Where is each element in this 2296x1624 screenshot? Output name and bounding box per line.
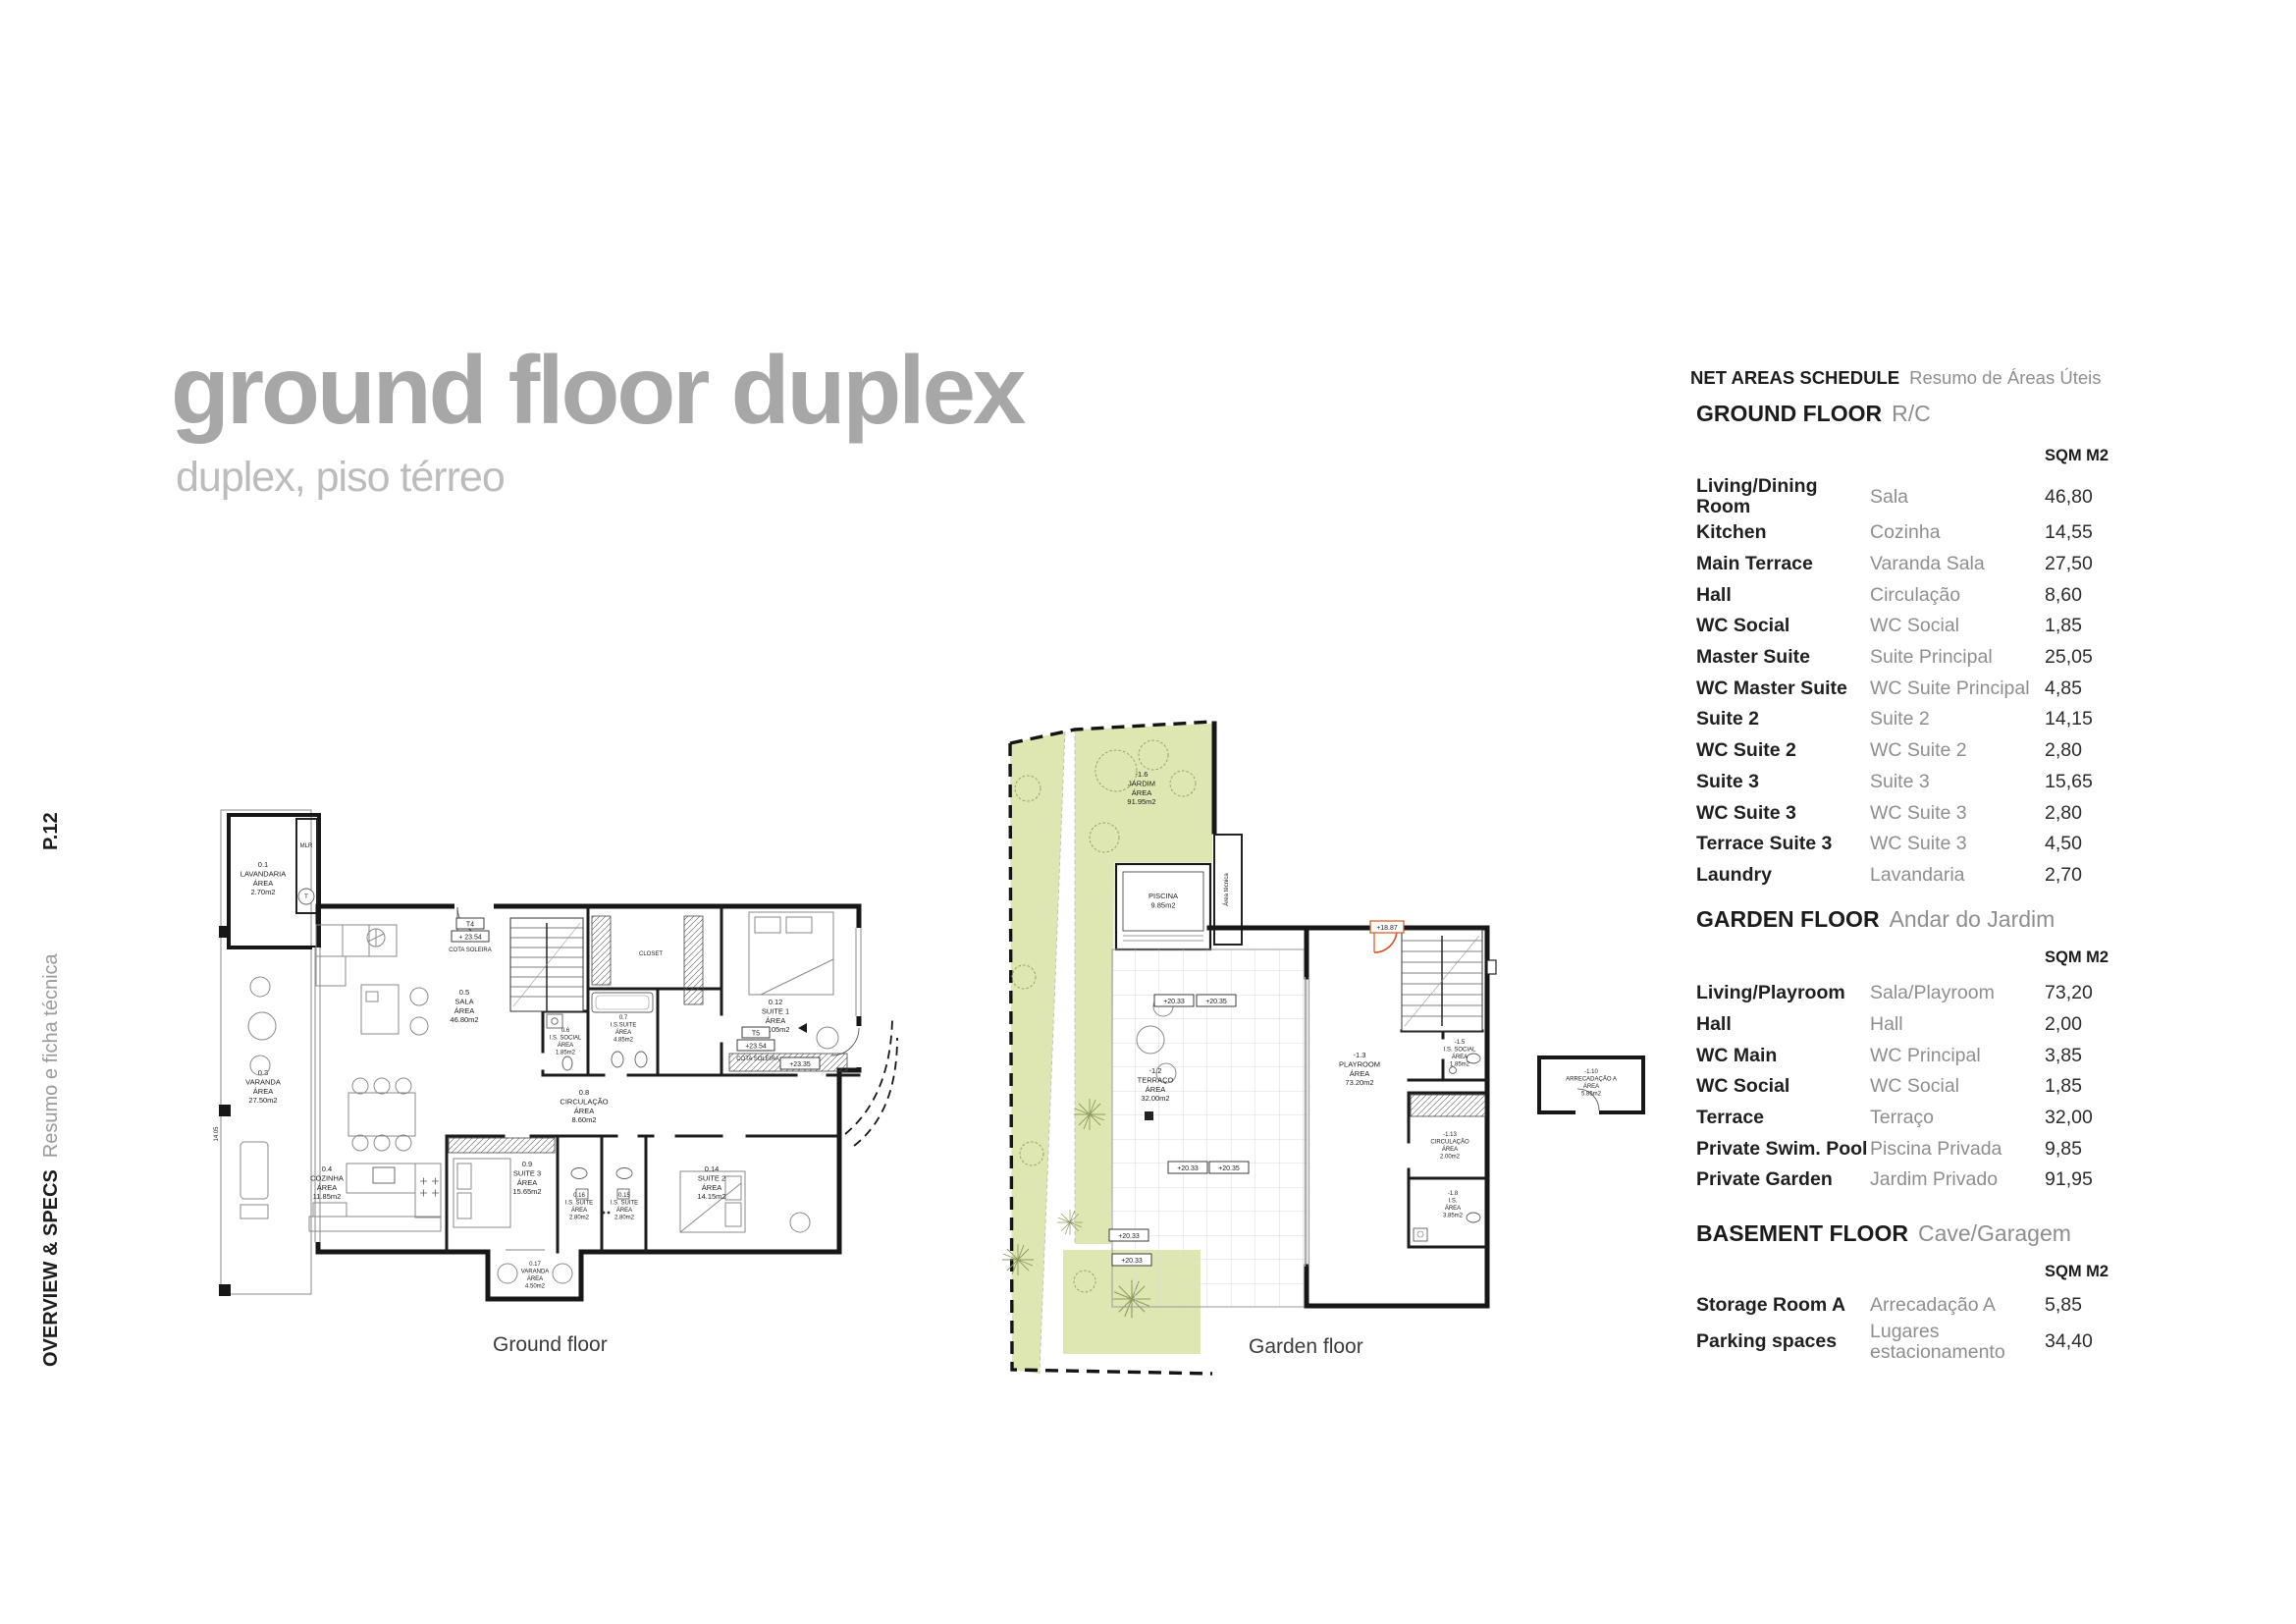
- varanda-furniture: [240, 977, 572, 1283]
- marker-2033c: +20.33: [1118, 1233, 1140, 1240]
- table-row: Storage Room AArrecadação A5,85: [1696, 1290, 2118, 1322]
- table-row: Living/PlayroomSala/Playroom73,20: [1696, 978, 2118, 1009]
- table-row: Suite 2Suite 214,15: [1696, 704, 2118, 735]
- room-name-en: Hall: [1696, 1014, 1870, 1035]
- entrance-door: +18.87: [1370, 921, 1404, 952]
- table-row: Terrace Suite 3WC Suite 34,50: [1696, 829, 2118, 860]
- room-area-value: 9,85: [2045, 1138, 2082, 1161]
- table-row: LaundryLavandaria2,70: [1696, 860, 2118, 892]
- room-name-pt: Arrecadação A: [1870, 1295, 2045, 1316]
- label-area-tecnica: Área técnica: [1223, 873, 1230, 906]
- room-name-en: WC Social: [1696, 616, 1870, 636]
- table-row: WC SocialWC Social1,85: [1696, 1071, 2118, 1103]
- marker-2033b: +20.33: [1177, 1165, 1199, 1172]
- room-name-pt: Lavandaria: [1870, 865, 2045, 886]
- ground-interior-walls: [447, 906, 859, 1252]
- marker-2033d: +20.33: [1121, 1258, 1143, 1265]
- room-name-en: Terrace Suite 3: [1696, 834, 1870, 854]
- section-garden-floor: GARDEN FLOORAndar do Jardim: [1696, 906, 2055, 933]
- section-name-en: BASEMENT FLOOR: [1696, 1220, 1908, 1246]
- room-name-en: Private Swim. Pool: [1696, 1139, 1870, 1160]
- table-row: Suite 3Suite 315,65: [1696, 767, 2118, 798]
- room-name-en: WC Suite 3: [1696, 803, 1870, 824]
- marker-2335: +23.35: [789, 1061, 811, 1068]
- room-name-en: WC Master Suite: [1696, 678, 1870, 699]
- room-name-pt: Lugares estacionamento: [1870, 1322, 2045, 1363]
- marker-2035: +20.35: [1205, 999, 1227, 1005]
- room-area-value: 73,20: [2045, 982, 2093, 1004]
- room-name-en: WC Main: [1696, 1046, 1870, 1066]
- marker-2354b: +23.54: [745, 1044, 767, 1051]
- floor-plan-ground: T MLR 0.1LAVANDARIAÁREA2.70m2: [211, 781, 898, 1316]
- section-name-pt: R/C: [1892, 401, 1931, 426]
- table-row: Private Swim. PoolPiscina Privada9,85: [1696, 1133, 2118, 1164]
- room-label-garden-circulacao: -1.13CIRCULAÇÃOÁREA2.00m2: [1430, 1132, 1469, 1161]
- room-label-lavandaria: 0.1LAVANDARIAÁREA2.70m2: [240, 860, 286, 896]
- table-row: HallCirculação8,60: [1696, 579, 2118, 611]
- room-name-pt: WC Social: [1870, 616, 2045, 636]
- table-row: Master SuiteSuite Principal25,05: [1696, 642, 2118, 674]
- brochure-page: ground floor duplex duplex, piso térreo …: [0, 0, 2296, 1624]
- room-area-value: 32,00: [2045, 1107, 2093, 1129]
- table-row: KitchenCozinha14,55: [1696, 517, 2118, 549]
- column-header-sqm: SQM M2: [2045, 1263, 2109, 1281]
- room-name-pt: WC Suite Principal: [1870, 678, 2045, 699]
- table-row: HallHall2,00: [1696, 1009, 2118, 1041]
- marker-cota-b: COTA SOLEIRA: [736, 1056, 779, 1062]
- schedule-title-pt: Resumo de Áreas Úteis: [1909, 367, 2101, 388]
- room-label-varanda-b: 0.17VARANDAÁREA4.50m2: [521, 1262, 550, 1290]
- caption-ground-floor: Ground floor: [493, 1333, 608, 1357]
- label-t: T: [304, 894, 308, 900]
- room-name-pt: WC Social: [1870, 1076, 2045, 1097]
- dim-label: 14.05: [214, 1126, 220, 1142]
- table-row: Private GardenJardim Privado91,95: [1696, 1164, 2118, 1196]
- room-label-is-social: 0.6I.S. SOCIALÁREA1.85m2: [550, 1028, 582, 1056]
- page-subtitle: duplex, piso térreo: [176, 454, 505, 502]
- room-name-en: Parking spaces: [1696, 1331, 1870, 1352]
- room-name-pt: WC Suite 3: [1870, 834, 2045, 854]
- room-label-circulacao: 0.8CIRCULAÇÃOÁREA8.60m2: [560, 1088, 608, 1124]
- room-label-arrecadacao: -1.10ARRECADAÇÃO AÁREA5.85m2: [1566, 1069, 1617, 1098]
- table-ground-floor: Living/Dining RoomSala46,80KitchenCozinh…: [1696, 476, 2118, 891]
- room-name-en: Laundry: [1696, 865, 1870, 886]
- room-name-en: Storage Room A: [1696, 1295, 1870, 1316]
- room-name-en: Living/Dining Room: [1696, 476, 1870, 517]
- room-area-value: 2,80: [2045, 802, 2082, 825]
- room-name-pt: Cozinha: [1870, 522, 2045, 543]
- room-label-garden-is: -1.8I.S.ÁREA3.85m2: [1443, 1191, 1464, 1219]
- room-label-sala: 0.5SALAÁREA46.80m2: [450, 988, 478, 1024]
- room-name-pt: Sala/Playroom: [1870, 983, 2045, 1003]
- driveway-arcs: [845, 1019, 897, 1146]
- room-name-en: WC Suite 2: [1696, 740, 1870, 761]
- room-name-pt: Suite Principal: [1870, 647, 2045, 668]
- room-label-piscina: PISCINA9.85m2: [1148, 892, 1178, 909]
- stairs-ground: [510, 918, 583, 1011]
- room-name-pt: Suite 3: [1870, 772, 2045, 792]
- schedule-title: NET AREAS SCHEDULEResumo de Áreas Úteis: [1690, 367, 2102, 389]
- storage-room: -1.10ARRECADAÇÃO AÁREA5.85m2: [1539, 1057, 1643, 1115]
- table-row: WC MainWC Principal3,85: [1696, 1040, 2118, 1071]
- room-name-en: Main Terrace: [1696, 554, 1870, 574]
- room-name-en: Terrace: [1696, 1108, 1870, 1128]
- schedule-title-en: NET AREAS SCHEDULE: [1690, 367, 1899, 388]
- sidebar-section-pt: Resumo e ficha técnica: [40, 953, 62, 1158]
- room-name-pt: Suite 2: [1870, 709, 2045, 730]
- table-basement-floor: Storage Room AArrecadação A5,85Parking s…: [1696, 1290, 2118, 1363]
- table-row: WC SocialWC Social1,85: [1696, 611, 2118, 642]
- sidebar-section-en: OVERVIEW & SPECS: [40, 1169, 62, 1367]
- room-area-value: 27,50: [2045, 553, 2093, 575]
- caption-garden-floor: Garden floor: [1249, 1335, 1363, 1359]
- marker-2354a: + 23.54: [458, 935, 482, 942]
- column-header-sqm: SQM M2: [2045, 447, 2109, 465]
- stairs-garden: [1402, 930, 1482, 1031]
- room-lavandaria: T MLR 0.1LAVANDARIAÁREA2.70m2: [229, 815, 319, 947]
- floor-plan-garden: Área técnica PISCINA9.85m2 -1.2TERRAÇOÁR…: [967, 682, 1654, 1380]
- room-name-en: Master Suite: [1696, 647, 1870, 668]
- table-row: Main TerraceVaranda Sala27,50: [1696, 549, 2118, 580]
- room-area-value: 34,40: [2045, 1330, 2093, 1353]
- room-name-pt: Varanda Sala: [1870, 554, 2045, 574]
- room-area-value: 15,65: [2045, 771, 2093, 793]
- room-label-varanda: 0.3VARANDAÁREA27.50m2: [245, 1068, 281, 1105]
- marker-2033a: +20.33: [1163, 999, 1185, 1005]
- room-name-pt: Terraço: [1870, 1108, 2045, 1128]
- room-name-pt: Sala: [1870, 487, 2045, 508]
- room-name-en: Living/Playroom: [1696, 983, 1870, 1003]
- room-area-value: 46,80: [2045, 486, 2093, 509]
- room-area-value: 2,00: [2045, 1013, 2082, 1036]
- column-header-sqm: SQM M2: [2045, 948, 2109, 967]
- room-area-value: 25,05: [2045, 646, 2093, 669]
- room-name-pt: WC Principal: [1870, 1046, 2045, 1066]
- section-name-pt: Cave/Garagem: [1918, 1220, 2071, 1246]
- room-name-en: Kitchen: [1696, 522, 1870, 543]
- room-name-en: Suite 3: [1696, 772, 1870, 792]
- room-area-value: 5,85: [2045, 1294, 2082, 1317]
- room-name-en: Suite 2: [1696, 709, 1870, 730]
- room-label-playroom: -1.3PLAYROOMÁREA73.20m2: [1339, 1051, 1380, 1087]
- section-basement-floor: BASEMENT FLOORCave/Garagem: [1696, 1220, 2071, 1247]
- room-name-en: Hall: [1696, 585, 1870, 606]
- marker-t5: T5: [752, 1031, 760, 1038]
- room-area-value: 4,85: [2045, 677, 2082, 700]
- table-row: WC Suite 3WC Suite 32,80: [1696, 797, 2118, 829]
- room-label-is-suite2: 0.15I.S. SUITEÁREA2.80m2: [611, 1193, 638, 1221]
- room-label-suite2: 0.14SUITE 2ÁREA14.15m2: [697, 1164, 725, 1201]
- marker-1887: +18.87: [1376, 925, 1398, 932]
- room-area-value: 91,95: [2045, 1168, 2093, 1191]
- room-label-suite3: 0.9SUITE 3ÁREA15.65m2: [512, 1160, 541, 1196]
- room-area-value: 2,80: [2045, 739, 2082, 762]
- section-name-pt: Andar do Jardim: [1890, 906, 2056, 932]
- marker-t4: T4: [466, 922, 474, 929]
- room-label-closet: CLOSET: [639, 951, 663, 957]
- room-area-value: 1,85: [2045, 615, 2082, 637]
- room-label-is-suite: 0.7I.S.SUITEÁREA4.85m2: [611, 1015, 637, 1044]
- room-name-en: WC Social: [1696, 1076, 1870, 1097]
- room-name-pt: WC Suite 3: [1870, 803, 2045, 824]
- marker-cota-a: COTA SOLEIRA: [449, 947, 492, 953]
- table-row: WC Master SuiteWC Suite Principal4,85: [1696, 673, 2118, 704]
- room-area-value: 14,55: [2045, 521, 2093, 544]
- label-mlr: MLR: [300, 843, 313, 849]
- room-name-pt: WC Suite 2: [1870, 740, 2045, 761]
- table-garden-floor: Living/PlayroomSala/Playroom73,20HallHal…: [1696, 978, 2118, 1196]
- sidebar-section-label: OVERVIEW & SPECSResumo e ficha técnica: [41, 953, 61, 1367]
- section-name-en: GARDEN FLOOR: [1696, 906, 1880, 932]
- swimming-pool: PISCINA9.85m2: [1116, 864, 1210, 949]
- room-area-value: 14,15: [2045, 708, 2093, 731]
- page-title: ground floor duplex: [171, 342, 1023, 438]
- room-name-pt: Piscina Privada: [1870, 1139, 2045, 1160]
- table-row: Living/Dining RoomSala46,80: [1696, 476, 2118, 517]
- room-area-value: 8,60: [2045, 584, 2082, 607]
- table-row: TerraceTerraço32,00: [1696, 1103, 2118, 1134]
- section-name-en: GROUND FLOOR: [1696, 401, 1882, 426]
- page-number: P.12: [41, 812, 61, 850]
- room-name-en: Private Garden: [1696, 1169, 1870, 1190]
- room-name-pt: Circulação: [1870, 585, 2045, 606]
- room-area-value: 3,85: [2045, 1045, 2082, 1067]
- room-area-value: 2,70: [2045, 864, 2082, 887]
- marker-2035b: +20.35: [1218, 1165, 1240, 1172]
- section-ground-floor: GROUND FLOORR/C: [1696, 401, 1931, 427]
- room-area-value: 4,50: [2045, 833, 2082, 855]
- living-furniture: [316, 925, 428, 1151]
- room-name-pt: Hall: [1870, 1014, 2045, 1035]
- room-label-is-suite3: 0.16I.S. SUITEÁREA2.80m2: [565, 1193, 593, 1221]
- table-row: Parking spacesLugares estacionamento34,4…: [1696, 1322, 2118, 1363]
- room-name-pt: Jardim Privado: [1870, 1169, 2045, 1190]
- room-area-value: 1,85: [2045, 1075, 2082, 1098]
- table-row: WC Suite 2WC Suite 22,80: [1696, 735, 2118, 767]
